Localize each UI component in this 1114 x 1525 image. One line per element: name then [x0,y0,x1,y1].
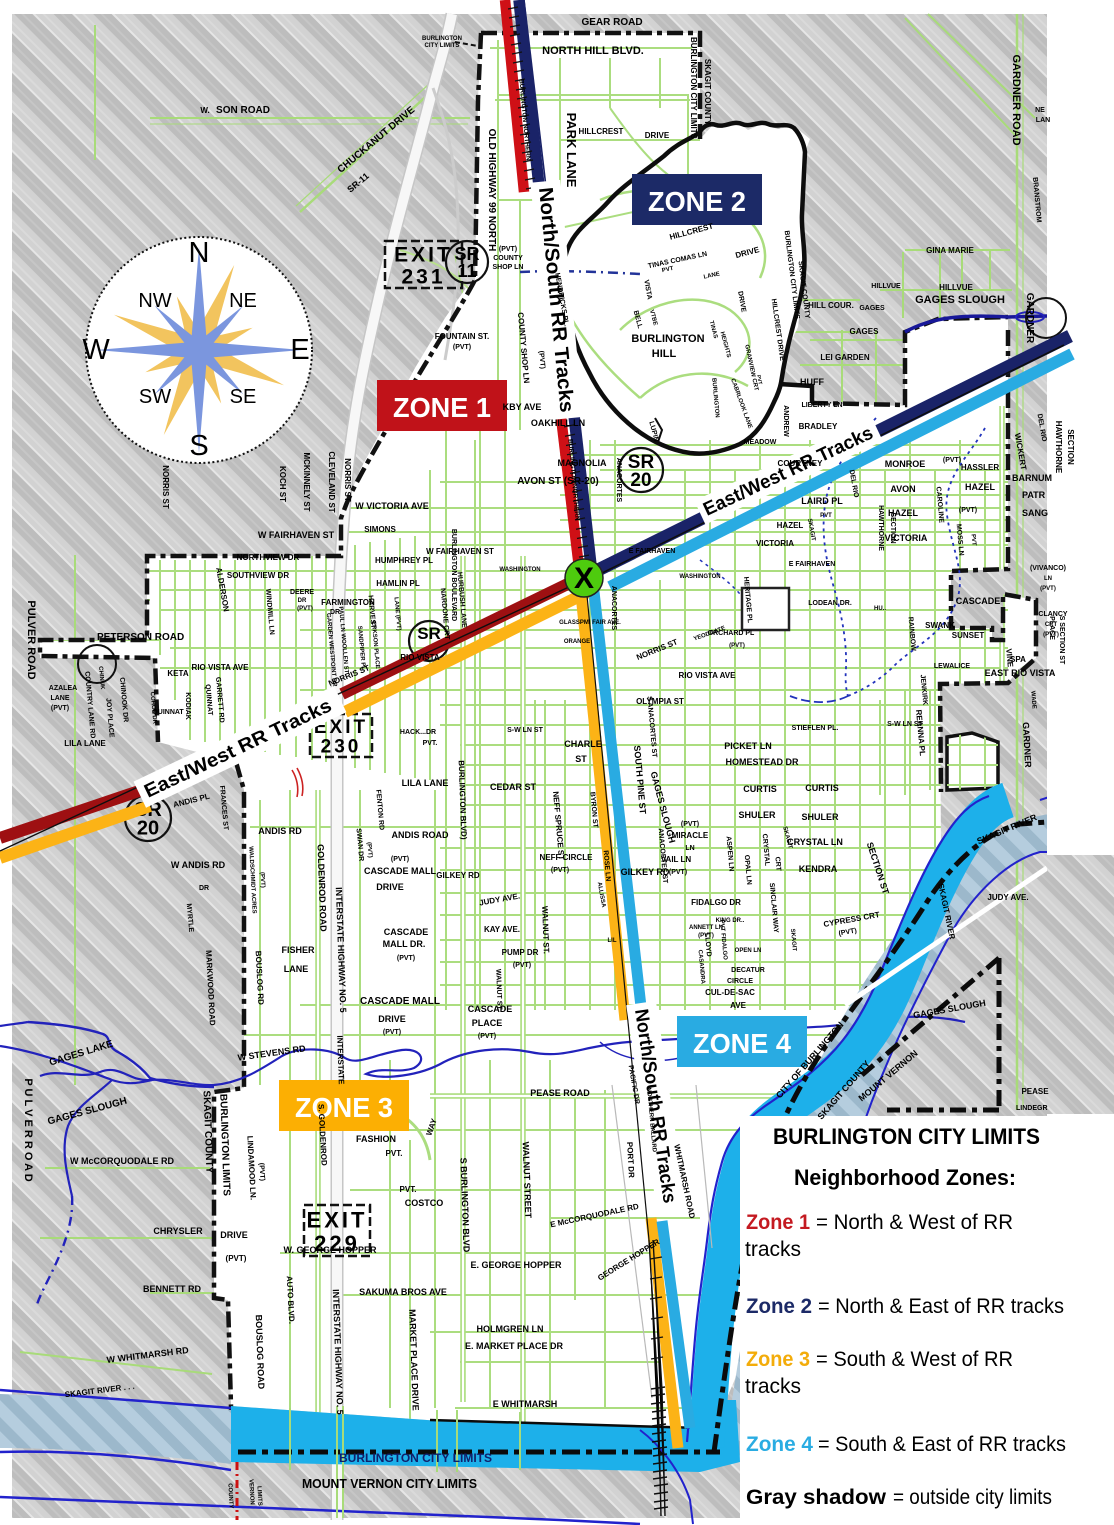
svg-text:(PVT): (PVT) [226,1254,247,1263]
svg-text:(PVT): (PVT) [453,344,471,351]
svg-text:LEI GARDEN: LEI GARDEN [820,353,870,362]
svg-text:LILA LANE: LILA LANE [402,778,449,788]
svg-text:CASCADE MALL: CASCADE MALL [364,866,436,876]
svg-text:(PVT): (PVT) [669,869,687,876]
svg-text:W. GEORGE HOPPER: W. GEORGE HOPPER [283,1245,377,1255]
svg-text:BENNETT RD: BENNETT RD [143,1284,201,1294]
svg-text:HOMESTEAD DR: HOMESTEAD DR [725,757,799,767]
svg-text:S SECTION ST: S SECTION ST [1058,616,1065,665]
svg-text:SWANK: SWANK [925,621,955,630]
svg-text:E. MARKET PLACE DR: E. MARKET PLACE DR [465,1341,564,1351]
svg-text:HILLVUE: HILLVUE [939,283,973,292]
svg-text:(PVT): (PVT) [551,867,569,874]
svg-text:(PVT): (PVT) [1040,586,1056,592]
svg-text:CASCADE: CASCADE [956,596,1001,606]
svg-text:(PVT): (PVT) [729,643,745,649]
svg-text:WASHINGTON: WASHINGTON [679,574,720,580]
svg-text:LIMITS: LIMITS [255,1486,262,1506]
svg-text:HAWTHORNE: HAWTHORNE [1054,421,1063,474]
svg-text:231: 231 [401,265,445,288]
svg-text:DRIVE: DRIVE [378,1014,406,1024]
svg-text:E. GEORGE HOPPER: E. GEORGE HOPPER [470,1260,562,1270]
svg-text:BURLINGTON CITY LIMITS: BURLINGTON CITY LIMITS [773,1124,1040,1149]
svg-text:(PVT): (PVT) [513,962,531,969]
svg-text:11: 11 [457,261,476,281]
svg-text:CASCADE: CASCADE [384,927,429,937]
svg-text:PLACE: PLACE [1048,616,1055,640]
svg-text:ORANGE: ORANGE [564,639,590,645]
svg-text:ZONE 3: ZONE 3 [295,1092,393,1123]
svg-text:OPEN LN: OPEN LN [735,948,762,954]
svg-text:W.: W. [200,106,209,115]
svg-text:CHRYSLER: CHRYSLER [153,1226,203,1236]
svg-text:W FAIRHAVEN ST: W FAIRHAVEN ST [258,530,335,540]
svg-text:ST: ST [575,754,587,764]
svg-text:CRT: CRT [773,856,781,872]
svg-text:N: N [189,237,210,269]
svg-text:CUL-DE-SAC: CUL-DE-SAC [705,988,755,997]
svg-text:P U L V E R R O A D: P U L V E R R O A D [22,1078,34,1181]
svg-text:(PVT): (PVT) [943,457,961,464]
svg-text:OLD HIGHWAY 99 NORTH: OLD HIGHWAY 99 NORTH [486,129,497,252]
svg-text:INTERSTATE: INTERSTATE [335,1035,346,1085]
svg-text:BURLINGTON: BURLINGTON [422,36,462,42]
svg-text:WASHINGTON: WASHINGTON [499,567,540,573]
svg-text:SIMONS: SIMONS [364,525,396,534]
svg-text:SON ROAD: SON ROAD [216,105,270,116]
svg-text:SOUTHVIEW DR: SOUTHVIEW DR [227,571,289,580]
svg-text:(PVT): (PVT) [258,1163,266,1182]
svg-text:LILA LANE: LILA LANE [64,739,106,748]
svg-text:230: 230 [321,737,362,758]
svg-text:(VIVANCO): (VIVANCO) [1030,565,1066,572]
svg-text:Zone 4: Zone 4 [746,1433,813,1456]
svg-text:HOLMGREN LN: HOLMGREN LN [477,1324,544,1334]
svg-text:CASCADE MALL: CASCADE MALL [360,996,440,1007]
svg-text:HAZEL: HAZEL [777,521,804,530]
svg-text:CIRCLE: CIRCLE [727,978,753,985]
svg-text:KODIAK: KODIAK [184,692,191,720]
svg-text:CEDAR ST: CEDAR ST [490,782,537,792]
svg-text:ZONE 4: ZONE 4 [693,1028,791,1059]
svg-text:(PVT): (PVT) [383,1029,401,1036]
svg-text:EAST RIO VISTA: EAST RIO VISTA [985,668,1056,678]
svg-text:(PVT): (PVT) [259,872,266,888]
svg-text:= outside city limits: = outside city limits [893,1486,1052,1509]
svg-text:20: 20 [137,818,159,840]
svg-text:PULVER ROAD: PULVER ROAD [25,600,37,679]
svg-text:JUDY AVE.: JUDY AVE. [987,893,1028,902]
svg-text:SHULER: SHULER [801,812,839,822]
svg-text:AVE: AVE [730,1001,747,1010]
svg-text:CASCADE: CASCADE [468,1004,513,1014]
svg-text:PVT: PVT [969,534,976,546]
svg-text:CURTIS: CURTIS [805,783,839,793]
svg-text:CURTIS: CURTIS [743,784,777,794]
svg-text:LODEAN DR.: LODEAN DR. [808,600,852,607]
svg-text:SR: SR [417,624,441,643]
svg-text:X: X [574,562,594,595]
svg-text:E: E [290,334,309,366]
svg-text:PARK LANE: PARK LANE [564,113,579,188]
svg-text:Gray shadow: Gray shadow [746,1486,887,1509]
svg-text:HU..: HU.. [874,606,886,612]
svg-text:GINA MARIE: GINA MARIE [926,246,974,255]
svg-text:FISHER: FISHER [281,945,315,955]
svg-text:NORRIS ST: NORRIS ST [343,458,352,502]
svg-text:(PVT): (PVT) [478,1033,496,1040]
svg-text:MONROE: MONROE [885,459,926,469]
svg-text:BRADLEY: BRADLEY [799,422,838,431]
svg-text:SAKUMA BROS AVE: SAKUMA BROS AVE [359,1287,447,1297]
svg-text:BURLINGTON CITY LIMITS: BURLINGTON CITY LIMITS [339,1451,492,1465]
svg-text:CRYSTAL LN: CRYSTAL LN [787,837,843,847]
svg-text:STIEFLEN PL.: STIEFLEN PL. [792,725,839,732]
svg-text:KBY AVE: KBY AVE [503,402,542,412]
svg-text:LAIRD PL: LAIRD PL [801,496,843,506]
svg-text:S-W LN ST: S-W LN ST [507,727,543,734]
svg-text:W ANDIS RD: W ANDIS RD [171,860,226,870]
svg-text:HAWTHORNE: HAWTHORNE [877,505,884,551]
svg-text:E WHITMARSH: E WHITMARSH [493,1399,558,1409]
svg-text:NORRIS ST: NORRIS ST [161,465,170,509]
svg-text:COURTNEY: COURTNEY [778,459,824,468]
svg-text:COSTCO: COSTCO [405,1198,444,1208]
svg-text:VICTORIA: VICTORIA [756,539,794,548]
svg-text:= North & West of RR: = North & West of RR [816,1211,1013,1234]
svg-text:COUNTY: COUNTY [493,255,523,262]
svg-text:HILLCREST: HILLCREST [579,127,624,136]
svg-text:LAN: LAN [1036,117,1050,124]
svg-text:HAZEL: HAZEL [965,482,995,492]
svg-text:NORTH HILL BLVD.: NORTH HILL BLVD. [542,45,644,57]
svg-text:MALL DR.: MALL DR. [383,939,426,949]
svg-text:AVON ST (SR-20): AVON ST (SR-20) [517,476,599,487]
svg-text:SUNSET: SUNSET [952,631,985,640]
svg-text:PVT.: PVT. [386,1149,403,1158]
svg-text:WALNUT ST.: WALNUT ST. [494,969,502,1011]
svg-text:VAIL LN: VAIL LN [661,855,692,864]
svg-text:(PVT): (PVT) [397,955,415,962]
svg-text:SE: SE [230,386,257,408]
svg-text:CITY LIMITS: CITY LIMITS [425,43,460,49]
svg-text:NE: NE [1035,107,1045,114]
svg-text:NEFF CIRCLE: NEFF CIRCLE [540,853,594,862]
svg-text:Zone 1: Zone 1 [746,1211,810,1234]
svg-text:KOCH ST: KOCH ST [278,466,287,502]
svg-text:Zone 3: Zone 3 [746,1348,810,1371]
svg-text:AVON: AVON [890,484,915,494]
svg-text:= South & West of RR: = South & West of RR [816,1348,1013,1371]
svg-text:LN: LN [685,845,694,852]
svg-text:LINDEGR: LINDEGR [1016,1105,1048,1112]
svg-text:SHULER: SHULER [738,810,776,820]
svg-text:FOUNTAIN ST.: FOUNTAIN ST. [435,332,490,341]
svg-text:MOUNT VERNON CITY LIMITS: MOUNT VERNON CITY LIMITS [302,1476,477,1491]
svg-text:W: W [82,334,110,366]
svg-text:WALNUT ST.: WALNUT ST. [540,906,551,954]
svg-text:tracks: tracks [745,1238,801,1261]
svg-text:MEADOW: MEADOW [744,439,777,446]
svg-text:EXIT: EXIT [307,1207,368,1232]
svg-text:HILLVUE: HILLVUE [871,283,901,290]
svg-text:HILL: HILL [652,348,677,360]
svg-text:RIO VISTA AVE: RIO VISTA AVE [679,671,737,680]
svg-text:SECTION: SECTION [889,512,896,543]
svg-text:LIBERTY LN: LIBERTY LN [801,402,842,409]
svg-text:tracks: tracks [745,1375,801,1398]
svg-text:HAMLIN PL: HAMLIN PL [376,579,420,588]
svg-text:LANE: LANE [284,964,309,974]
svg-text:(PVT): (PVT) [499,246,517,253]
svg-text:GAGES SLOUGH: GAGES SLOUGH [915,294,1005,306]
svg-text:ANDIS ROAD: ANDIS ROAD [391,830,449,840]
svg-text:SECTION: SECTION [1066,429,1075,465]
svg-text:RIO VISTA: RIO VISTA [400,653,440,662]
svg-text:DECATUR: DECATUR [731,967,765,974]
svg-text:NW: NW [138,290,171,312]
svg-text:(PVT): (PVT) [959,507,977,514]
svg-text:HACK...DR: HACK...DR [400,729,436,736]
svg-text:PATR: PATR [1022,490,1046,500]
svg-text:KENDRA: KENDRA [799,864,838,874]
svg-text:LIL: LIL [608,938,617,944]
svg-text:W VICTORIA AVE: W VICTORIA AVE [355,501,429,511]
svg-text:ANDREW: ANDREW [782,405,789,437]
svg-text:PUMP DR: PUMP DR [502,948,539,957]
svg-text:DEERE: DEERE [290,589,314,596]
svg-text:OLYMPIA ST: OLYMPIA ST [636,697,684,706]
svg-text:ANACORTES: ANACORTES [615,458,622,503]
svg-text:LN: LN [1044,576,1052,582]
svg-text:HASSLER: HASSLER [961,463,999,472]
svg-text:SPA: SPA [1010,655,1026,664]
svg-text:SHOP LN: SHOP LN [493,264,524,271]
svg-text:ZONE 1: ZONE 1 [393,392,491,423]
svg-text:S: S [189,430,208,462]
svg-text:NE: NE [229,290,257,312]
svg-text:DR: DR [298,598,307,604]
svg-text:(PVT): (PVT) [297,606,313,612]
svg-text:W FAIRHAVEN ST: W FAIRHAVEN ST [426,547,494,556]
svg-text:HUFF: HUFF [800,377,824,387]
svg-text:W McCORQUODALE RD: W McCORQUODALE RD [70,1156,174,1166]
svg-text:GEAR ROAD: GEAR ROAD [581,17,642,28]
svg-text:GAGES: GAGES [859,305,885,312]
svg-text:(PVT): (PVT) [51,705,69,712]
svg-text:PEASE: PEASE [1021,1087,1049,1096]
svg-text:FASHION: FASHION [356,1134,396,1144]
svg-text:BARNUM: BARNUM [1012,473,1052,483]
svg-text:ANDIS RD: ANDIS RD [258,826,302,836]
svg-text:GAGES: GAGES [850,327,880,336]
svg-text:PICKET LN: PICKET LN [724,741,772,751]
svg-text:PEASE ROAD: PEASE ROAD [530,1088,590,1098]
svg-text:= North & East of RR tracks: = North & East of RR tracks [818,1295,1064,1318]
svg-text:HILL COUR.: HILL COUR. [808,301,854,310]
svg-text:PVT.: PVT. [423,740,438,747]
svg-text:GILKEY RD: GILKEY RD [436,871,480,880]
svg-text:PVT.: PVT. [400,1185,417,1194]
svg-text:ZONE 2: ZONE 2 [648,186,746,217]
svg-text:BURLINGTON: BURLINGTON [631,333,704,345]
svg-text:(PVT): (PVT) [681,821,699,828]
svg-text:AZALEA: AZALEA [49,685,77,692]
svg-text:DR: DR [199,885,209,892]
svg-text:E FAIRHAVEN: E FAIRHAVEN [629,548,676,555]
svg-text:NORTHVIEW DR: NORTHVIEW DR [237,553,300,562]
svg-text:CHARLE: CHARLE [564,739,602,749]
svg-text:KETA: KETA [167,669,188,678]
svg-text:BURLINGTON CITY LIMITS: BURLINGTON CITY LIMITS [689,37,698,140]
svg-text:E FAIRHAVEN: E FAIRHAVEN [789,561,836,568]
svg-text:SKAGIT COUNTY: SKAGIT COUNTY [703,59,712,126]
svg-text:= South & East of RR tracks: = South & East of RR tracks [818,1433,1066,1456]
svg-text:LEWALICE: LEWALICE [934,663,970,670]
svg-text:PVT: PVT [820,513,832,519]
svg-text:MAGNOLIA: MAGNOLIA [558,458,607,468]
svg-text:PLACE: PLACE [472,1018,503,1028]
svg-text:(PVT): (PVT) [391,856,409,863]
svg-text:MCKINNELY ST: MCKINNELY ST [302,452,311,511]
svg-text:DRIVE: DRIVE [376,882,404,892]
svg-text:DRIVE: DRIVE [645,131,670,140]
svg-text:SANG: SANG [1022,508,1048,518]
svg-text:Neighborhood Zones:: Neighborhood Zones: [794,1165,1016,1190]
svg-text:Zone 2: Zone 2 [746,1295,812,1318]
svg-text:KAY AVE.: KAY AVE. [484,925,520,934]
svg-text:CLEVELAND ST: CLEVELAND ST [327,451,336,512]
svg-text:PORT DR: PORT DR [625,1142,636,1179]
svg-text:20: 20 [630,470,651,491]
svg-text:FIDALGO DR: FIDALGO DR [691,898,741,907]
svg-text:LANE: LANE [50,695,69,702]
svg-text:(PVT): (PVT) [698,933,714,939]
svg-text:HUMPHREY PL: HUMPHREY PL [375,556,433,565]
svg-text:OAKHILL LN: OAKHILL LN [531,418,585,428]
svg-text:DRIVE: DRIVE [220,1230,248,1240]
svg-text:SW: SW [139,386,171,408]
svg-text:RIO VISTA AVE: RIO VISTA AVE [192,663,250,672]
svg-text:FARMINGTON: FARMINGTON [321,598,375,607]
svg-text:MIRACLE: MIRACLE [672,831,709,840]
svg-text:ANACORTES: ANACORTES [610,586,617,631]
svg-text:GARDNER: GARDNER [1024,293,1035,344]
svg-text:BURLINGTON BOULEVARD: BURLINGTON BOULEVARD [450,529,457,621]
svg-text:ANNETT LN: ANNETT LN [689,925,723,931]
svg-text:PETERSON ROAD: PETERSON ROAD [97,632,184,643]
svg-text:GARDNER ROAD: GARDNER ROAD [1010,54,1022,145]
svg-text:EXIT: EXIT [394,244,453,267]
